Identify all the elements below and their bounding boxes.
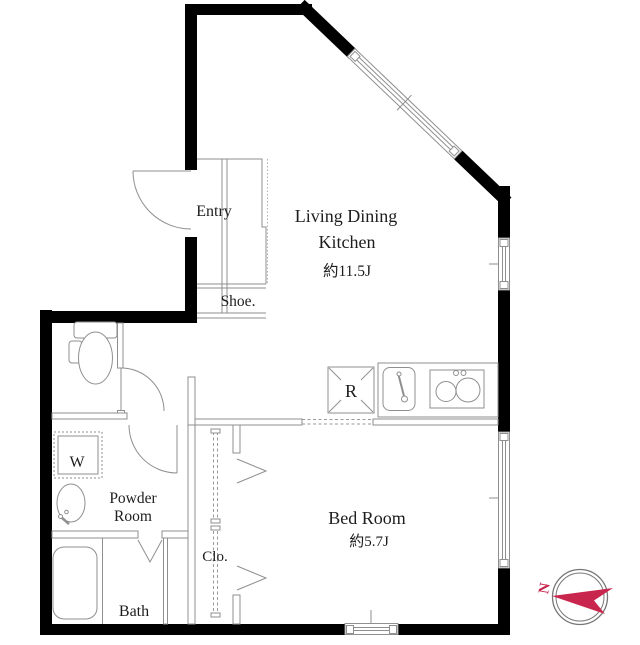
label-ldk-line2: Kitchen [319, 232, 376, 252]
label-ldk-line1: Living Dining [295, 206, 398, 226]
diagonal-wall-seg2 [454, 150, 511, 206]
kitchen-sink-icon [383, 368, 415, 411]
label-entry: Entry [196, 203, 232, 220]
closet-rod-icon [211, 429, 220, 617]
label-closet: Clo. [202, 549, 227, 565]
bath-divider-right [162, 531, 188, 538]
powder-room-door-icon [129, 425, 177, 473]
powder-room-top-wall [52, 413, 127, 419]
label-bedroom: Bed Room [328, 508, 406, 528]
wall-bottom-right [398, 624, 510, 635]
toilet-room-wall [118, 323, 124, 368]
bath-divider-left [52, 531, 138, 538]
closet-left-wall [188, 425, 195, 624]
label-fridge: R [345, 381, 357, 401]
partition-wall-left [195, 419, 302, 425]
label-powder-line2: Room [114, 508, 152, 525]
entry-door-icon [133, 171, 191, 229]
label-washer: W [69, 454, 85, 471]
wall-right-seg3 [498, 568, 510, 635]
bath-folding-door-icon [138, 540, 162, 562]
closet-arrow-top-icon [237, 459, 266, 483]
wall-right-seg2 [498, 290, 510, 432]
wall-entry-upper [185, 4, 197, 170]
ldk-window-icon [489, 238, 510, 290]
wall-left [40, 310, 52, 635]
kitchen-counter [378, 363, 498, 417]
outer-walls [40, 4, 510, 635]
floor-plan-drawing: N Entry Shoe. Living Dining Kitchen 約11.… [0, 0, 640, 640]
closet-stub-bottom [233, 595, 240, 624]
toilet-door-icon [121, 368, 164, 411]
bath-right-wall [164, 538, 168, 624]
label-bedroom-size: 約5.7J [349, 533, 389, 550]
partition-wall-right [373, 419, 498, 425]
bedroom-window-icon [489, 432, 510, 568]
hall-wall-stub [188, 377, 195, 425]
toilet-icon [69, 322, 117, 384]
label-shoe: Shoe. [221, 293, 256, 310]
compass-icon: N [536, 570, 613, 625]
wall-top [185, 4, 312, 15]
label-ldk-size: 約11.5J [323, 262, 371, 280]
diagonal-wall-seg1 [296, 0, 356, 58]
powder-sink-icon [57, 484, 85, 524]
entry-outline [197, 159, 266, 284]
wall-bottom-left [40, 624, 345, 635]
compass-north-label: N [536, 581, 554, 595]
wall-midleft-horizontal [40, 311, 197, 323]
floor-plan-page: N Entry Shoe. Living Dining Kitchen 約11.… [0, 0, 640, 640]
diagonal-wall [294, 0, 515, 209]
closet-stub-top [233, 425, 240, 453]
diagonal-window-icon [344, 45, 466, 162]
stove-icon [430, 370, 484, 408]
label-powder-line1: Powder [109, 490, 157, 507]
closet-arrow-bottom-icon [237, 566, 266, 590]
label-bath: Bath [119, 603, 149, 620]
bathtub-icon [53, 547, 97, 619]
wall-entry-lower [185, 237, 197, 323]
bottom-window-icon [345, 610, 398, 635]
